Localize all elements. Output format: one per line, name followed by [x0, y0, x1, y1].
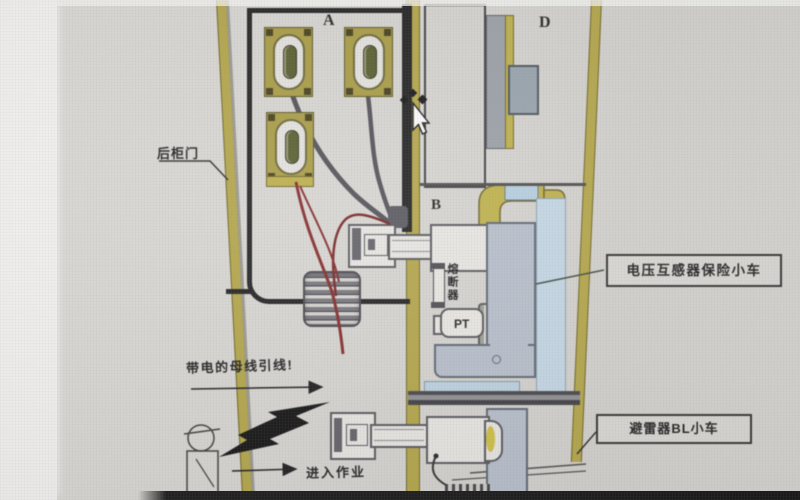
wire-terminal	[434, 454, 439, 459]
photo-of-screen: A B D 熔断器 PT 后柜门 带电的母线引线! 进入作业 电压互感器保险小车…	[0, 0, 800, 500]
arrester-wire	[433, 456, 446, 485]
live-cable-red	[333, 215, 390, 296]
photo-left-edge	[0, 0, 57, 500]
rear-door-leader	[159, 161, 228, 180]
photo-top-edge	[57, 0, 800, 6]
annotation-layer	[0, 0, 800, 500]
arrester-label-leader	[577, 432, 596, 454]
lightning-bolt-icon	[219, 402, 330, 457]
busbar-warning-arrow	[191, 387, 322, 389]
photo-bottom-edge	[138, 491, 800, 500]
switchgear-diagram: A B D 熔断器 PT 后柜门 带电的母线引线! 进入作业 电压互感器保险小车…	[0, 0, 800, 500]
person-figure	[184, 425, 220, 494]
vt-label-leader	[536, 270, 604, 284]
enter-work-arrow	[232, 469, 296, 471]
mouse-cursor-icon	[400, 89, 429, 134]
